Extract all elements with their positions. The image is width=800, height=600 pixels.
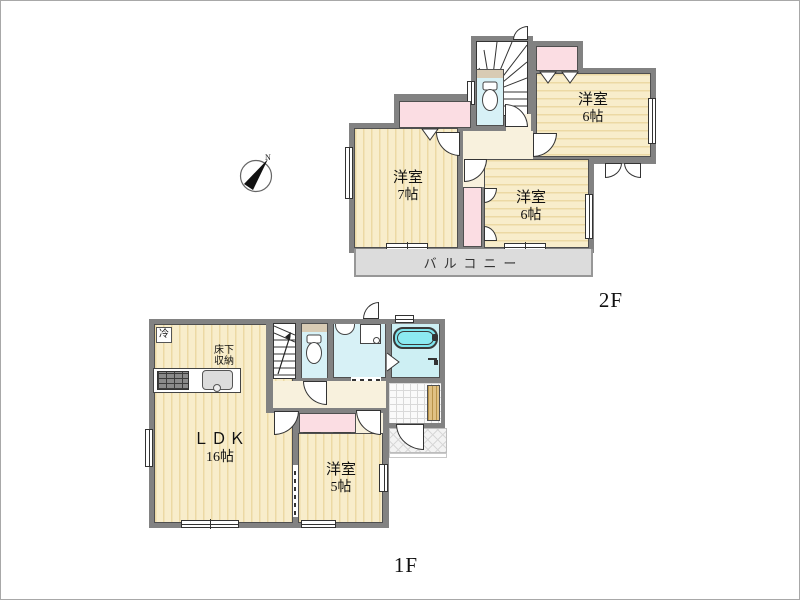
folding-door-icon <box>385 352 402 372</box>
window <box>145 429 153 467</box>
closet <box>299 413 356 433</box>
shoe-cabinet <box>427 385 440 421</box>
faucet-icon <box>432 334 438 341</box>
window <box>395 315 414 323</box>
wall <box>266 319 273 413</box>
refrigerator-label: 冷 <box>159 329 169 340</box>
hall-1f <box>273 381 386 408</box>
casement-window-arc <box>624 163 641 178</box>
toilet-shelf <box>477 70 503 78</box>
refrigerator-box: 冷 <box>156 327 172 343</box>
closet <box>536 46 578 71</box>
staircase-1f <box>273 323 296 379</box>
floor-plan-canvas: N <box>0 0 800 600</box>
window <box>301 520 336 528</box>
underfloor-storage-label: 床下収納 <box>203 345 245 367</box>
window <box>345 147 353 199</box>
balcony: バルコニー <box>354 249 593 277</box>
casement-window-arc <box>605 163 622 178</box>
toilet-shelf <box>302 324 327 332</box>
window <box>648 98 656 144</box>
toilet-room-1f <box>301 323 328 379</box>
svg-text:N: N <box>265 153 271 162</box>
window <box>585 194 593 239</box>
room-label: 洋室6帖 <box>563 92 623 126</box>
window <box>379 464 388 492</box>
window <box>181 520 239 528</box>
floor2-label: 2F <box>581 288 641 313</box>
porch-step <box>389 453 447 458</box>
toilet-icon <box>481 81 499 113</box>
closet <box>399 101 471 128</box>
closet <box>463 187 482 247</box>
sliding-partition-dashes <box>294 467 296 515</box>
room-label: 洋室6帖 <box>501 190 561 224</box>
room-label: ＬＤＫ 16帖 <box>170 431 270 466</box>
washing-machine-drain-icon <box>373 337 380 344</box>
stove-icon <box>157 371 189 390</box>
balcony-label: バルコニー <box>356 253 591 272</box>
hall-2f <box>463 131 533 159</box>
shower-icon <box>434 360 438 365</box>
room-label: 洋室7帖 <box>378 170 438 204</box>
closet-door-mark <box>539 71 557 84</box>
sink-drain-icon <box>213 384 221 392</box>
room-label: 洋室5帖 <box>311 462 371 496</box>
rear-door-arc <box>363 302 379 319</box>
toilet-room-2f <box>476 69 504 126</box>
compass-icon: N <box>237 151 275 195</box>
floor1-label: 1F <box>376 553 436 578</box>
closet-door-mark <box>561 71 579 84</box>
door-arc <box>513 26 528 40</box>
toilet-icon <box>305 334 323 366</box>
